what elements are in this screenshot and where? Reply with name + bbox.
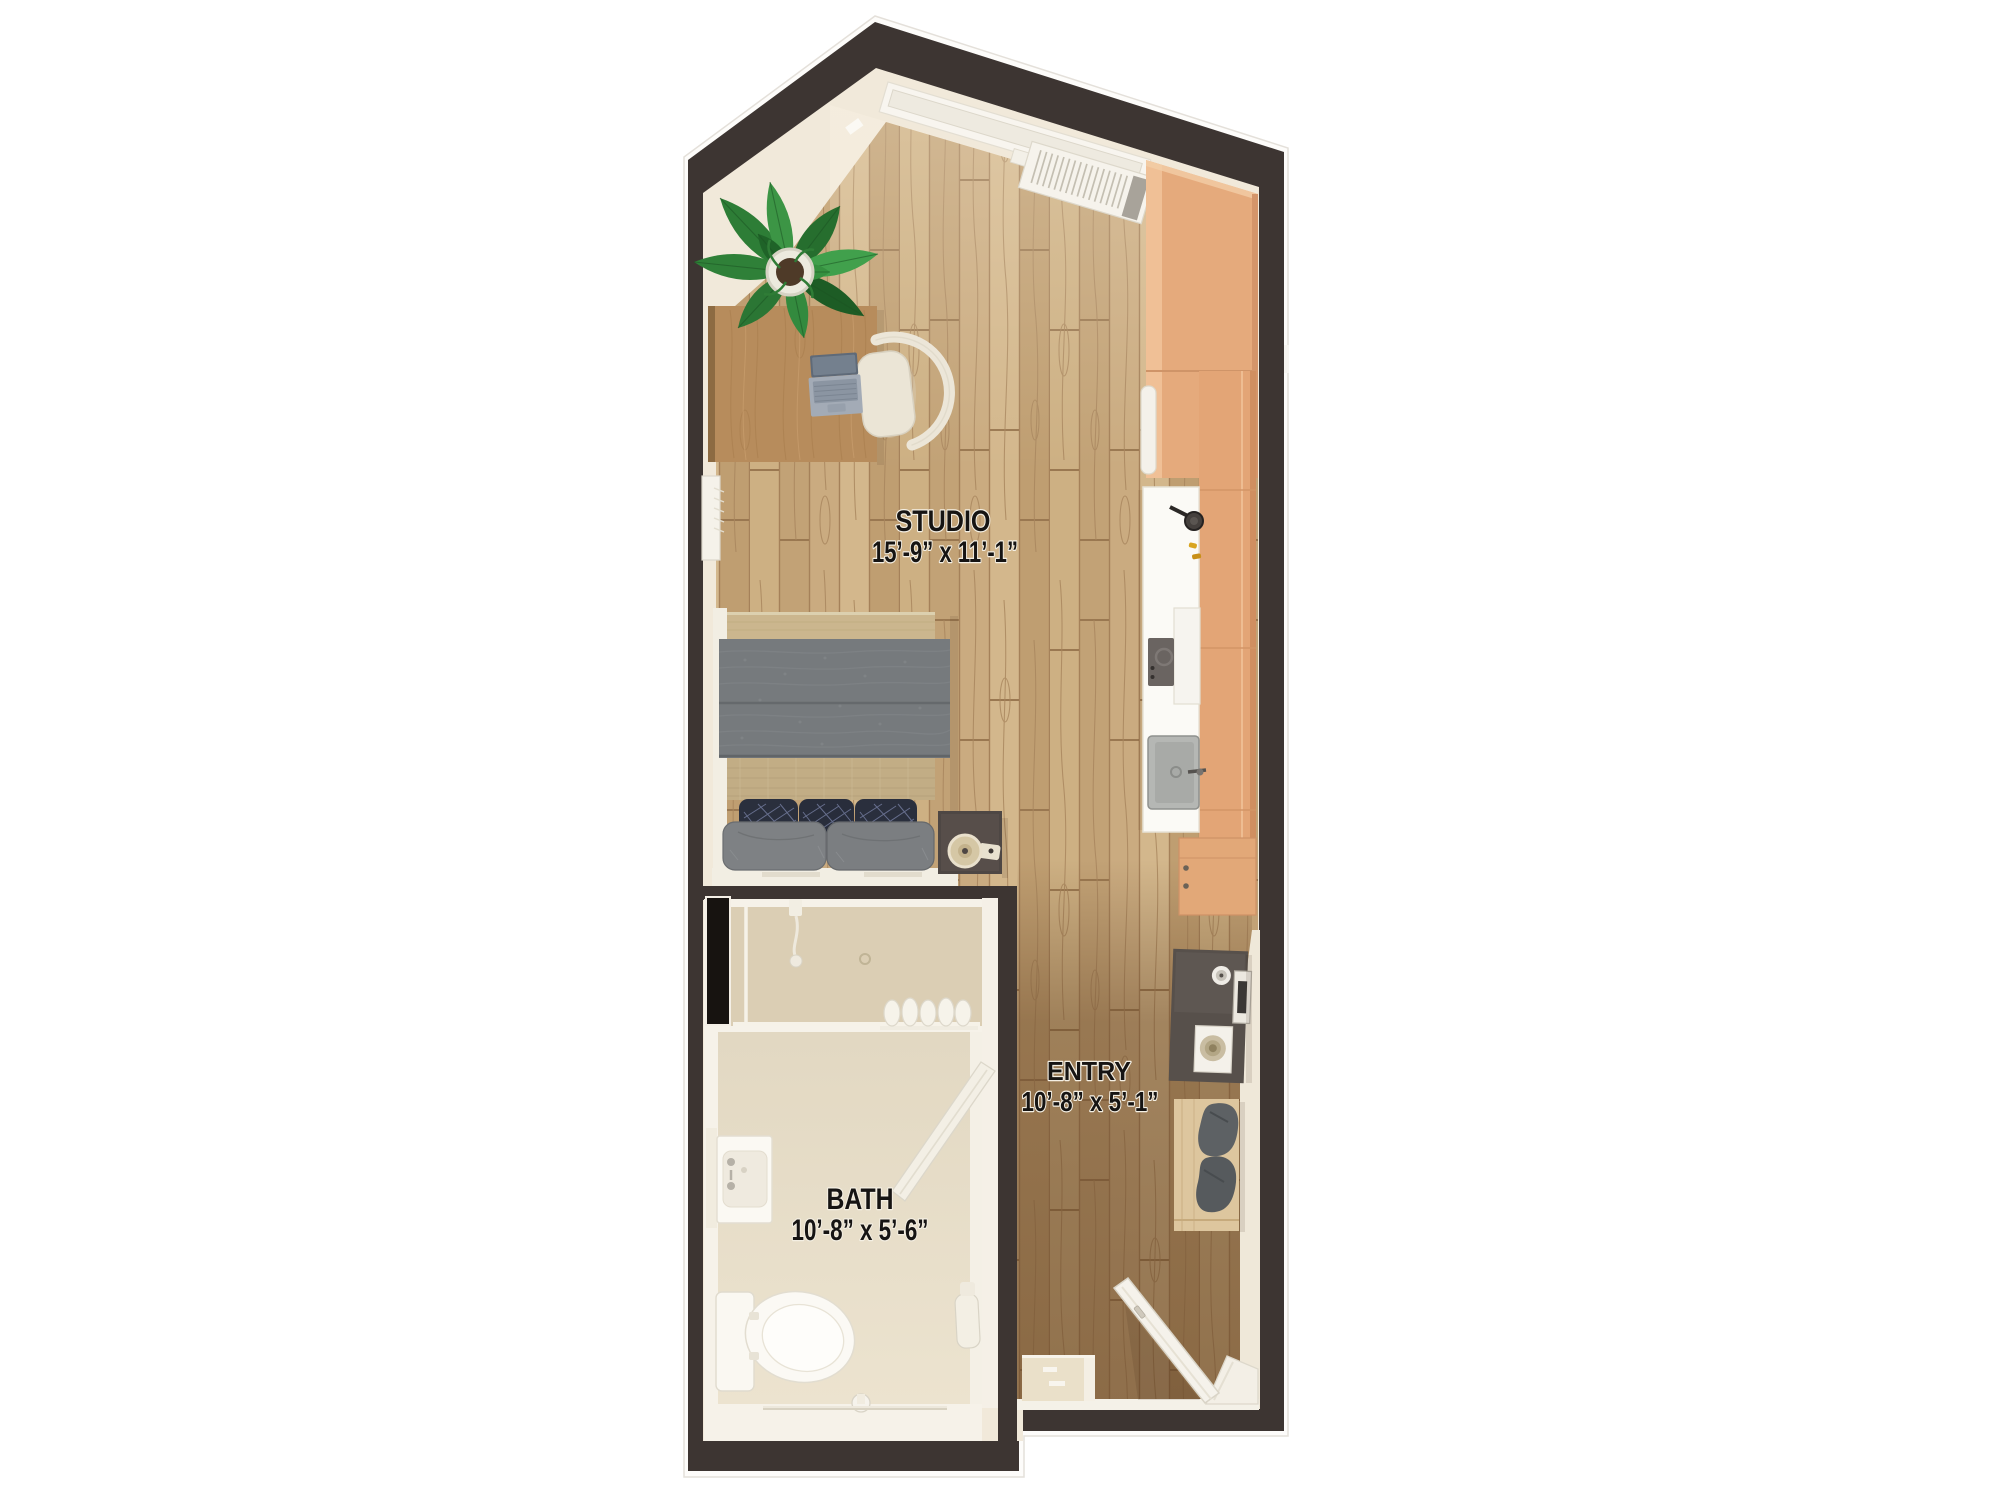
svg-text:10’-8” x 5’-6”: 10’-8” x 5’-6” [792, 1214, 929, 1247]
svg-text:STUDIO: STUDIO [896, 505, 991, 538]
svg-text:10’-8” x 5’-1”: 10’-8” x 5’-1” [1022, 1086, 1159, 1117]
svg-text:BATH: BATH [827, 1183, 894, 1216]
svg-text:15’-9” x 11’-1”: 15’-9” x 11’-1” [872, 536, 1018, 569]
svg-text:ENTRY: ENTRY [1047, 1056, 1131, 1086]
